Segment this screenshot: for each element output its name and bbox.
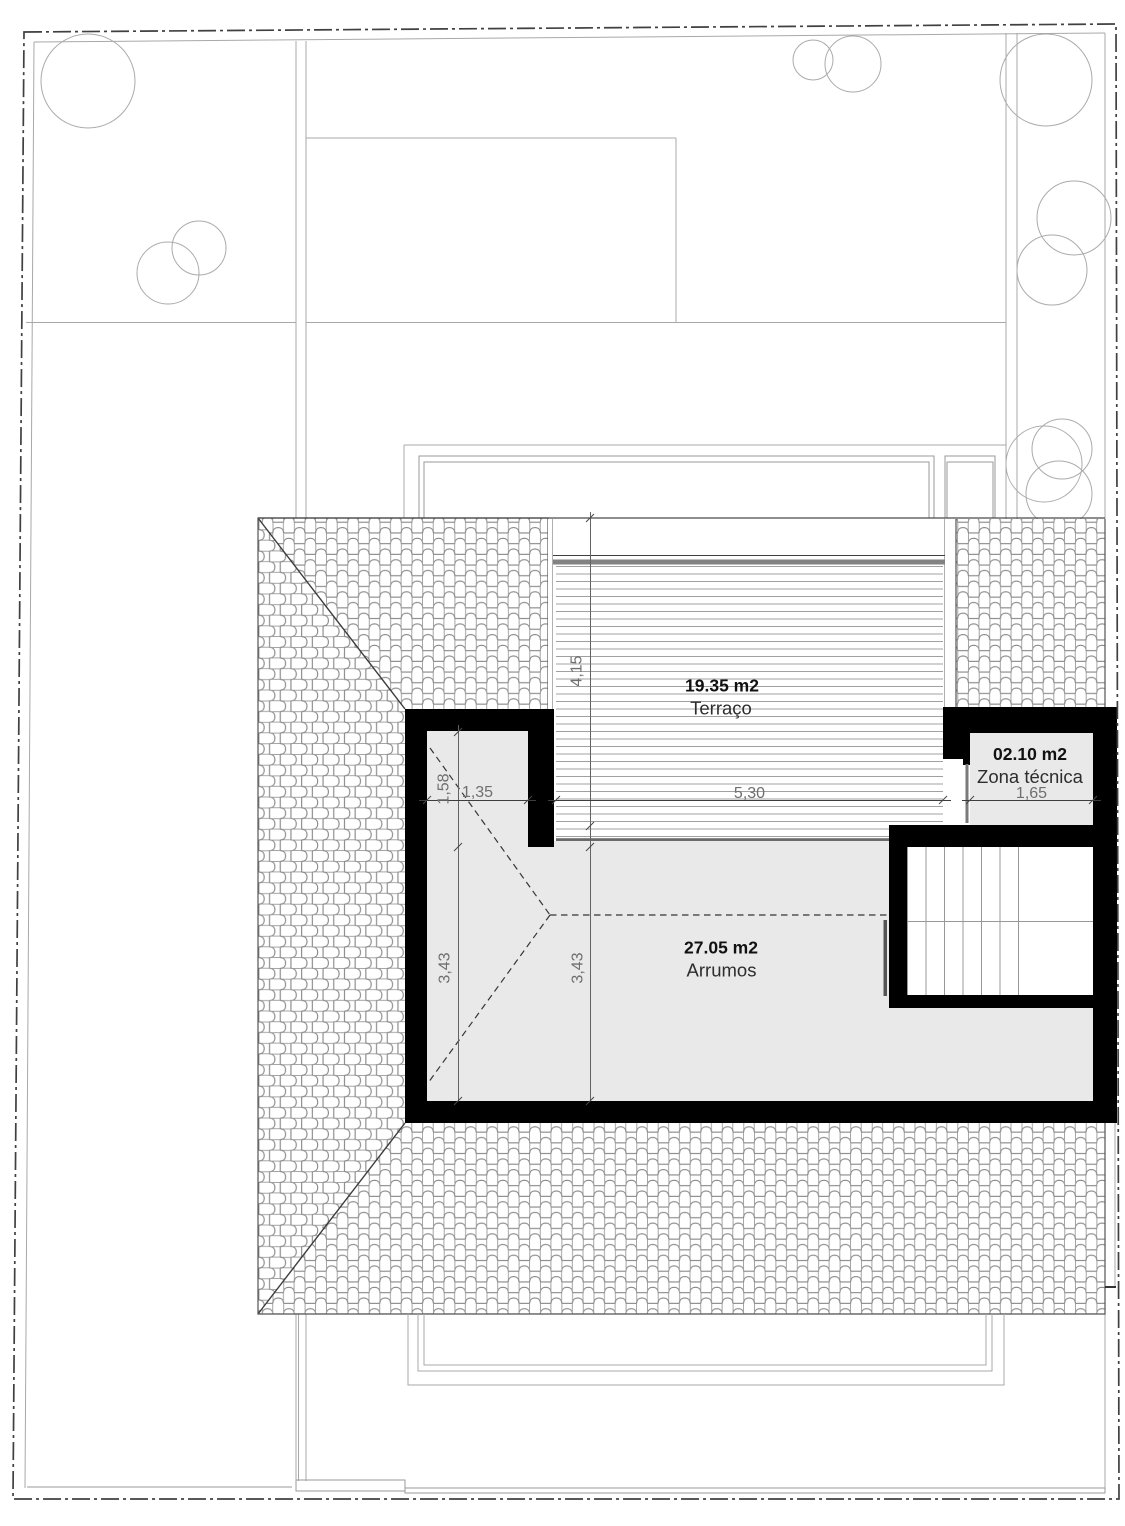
svg-text:1,35: 1,35 <box>462 784 493 801</box>
svg-text:Arrumos: Arrumos <box>687 960 757 981</box>
svg-text:Zona técnica: Zona técnica <box>977 766 1084 787</box>
svg-text:3,43: 3,43 <box>437 952 454 983</box>
svg-text:Terraço: Terraço <box>690 698 752 719</box>
svg-text:27.05 m2: 27.05 m2 <box>684 938 758 958</box>
svg-text:19.35 m2: 19.35 m2 <box>685 676 759 696</box>
svg-text:5,30: 5,30 <box>734 785 765 802</box>
svg-text:3,43: 3,43 <box>570 952 587 983</box>
svg-text:02.10 m2: 02.10 m2 <box>993 744 1067 764</box>
svg-text:1,65: 1,65 <box>1016 785 1047 802</box>
svg-text:4,15: 4,15 <box>569 655 586 686</box>
svg-text:1,58: 1,58 <box>436 773 453 804</box>
